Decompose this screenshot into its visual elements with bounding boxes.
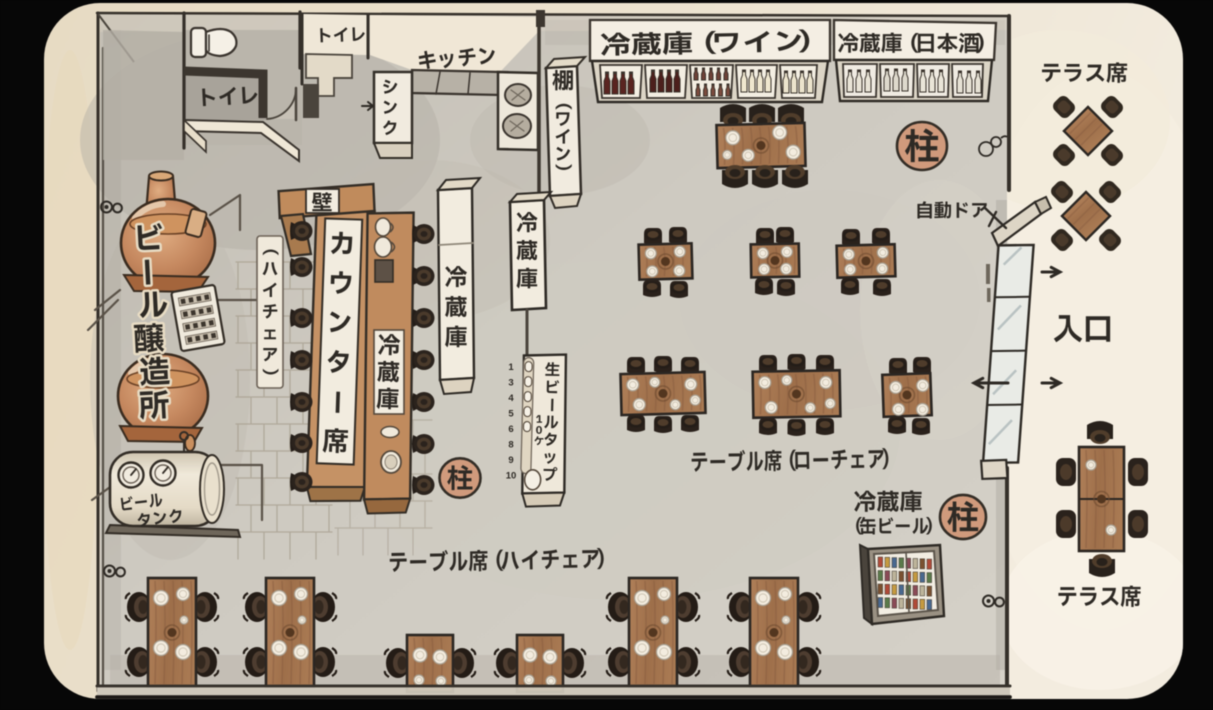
svg-text:10: 10: [506, 471, 517, 482]
svg-text:8: 8: [508, 440, 513, 451]
svg-text:3: 3: [508, 378, 513, 389]
svg-text:9: 9: [508, 455, 513, 466]
svg-text:6: 6: [508, 424, 513, 435]
svg-text:4: 4: [508, 393, 514, 404]
svg-text:1: 1: [508, 362, 514, 373]
svg-text:5: 5: [508, 409, 514, 420]
